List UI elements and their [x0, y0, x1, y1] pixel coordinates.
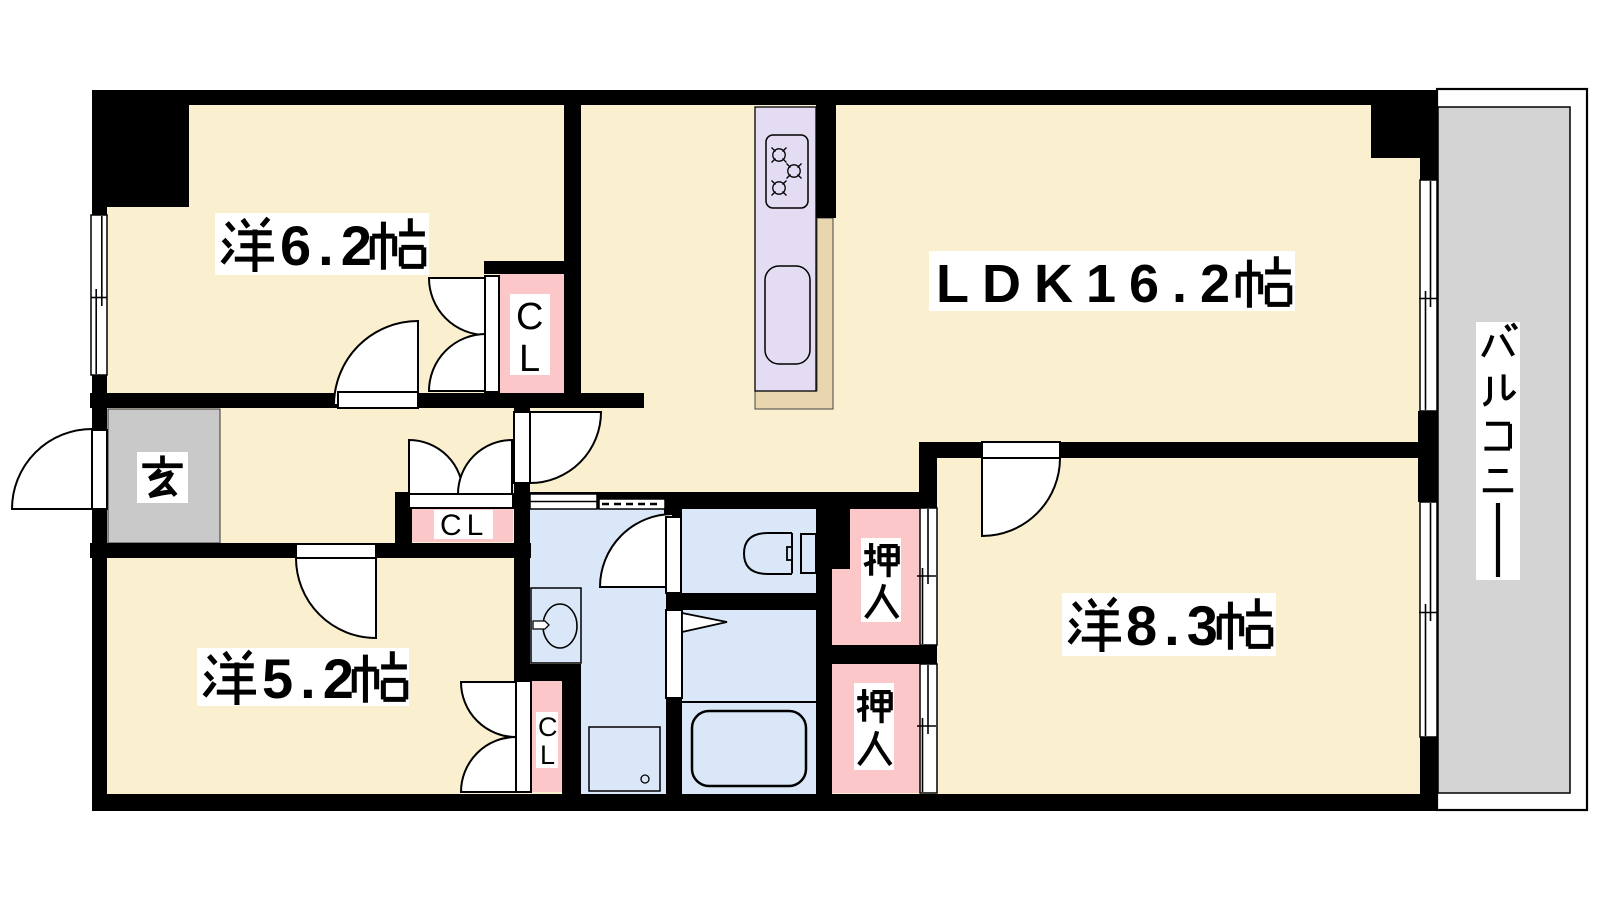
svg-text:C: C: [516, 296, 543, 338]
svg-text:CL: CL: [440, 509, 488, 542]
svg-text:L: L: [519, 338, 540, 380]
svg-text:LDK16.2: LDK16.2: [936, 254, 1243, 314]
svg-text:L: L: [540, 740, 555, 770]
svg-text:C: C: [538, 712, 558, 742]
svg-text:6.2: 6.2: [280, 214, 379, 277]
svg-text:8.3: 8.3: [1126, 594, 1225, 657]
svg-text:5.2: 5.2: [262, 647, 361, 710]
